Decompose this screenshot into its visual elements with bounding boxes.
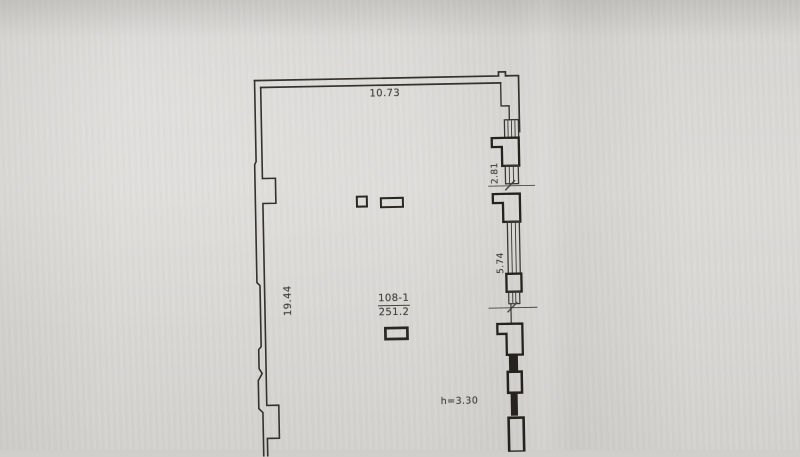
room-number-label: 108-1 xyxy=(378,293,410,307)
dim-label-top-width: 10.73 xyxy=(361,88,409,100)
column-right-3 xyxy=(509,418,525,452)
room-area-label: 251.2 xyxy=(376,307,412,319)
window-band-upper xyxy=(504,120,518,138)
column-rect-top xyxy=(381,198,403,207)
right-wall xyxy=(485,82,540,452)
top-wall xyxy=(254,72,519,137)
ceiling-height-label: h=3.30 xyxy=(441,395,479,407)
column-rect-center xyxy=(385,328,407,339)
left-wall xyxy=(253,80,281,456)
floor-plan: 10.73 19.44 2.81 5.74 108-1 251.2 h=3.30 xyxy=(240,61,547,457)
dim-label-left-height: 19.44 xyxy=(282,285,294,316)
pilaster-right-2 xyxy=(493,194,521,223)
dim-label-right-upper: 2.81 xyxy=(490,162,500,184)
window-band-small xyxy=(509,292,520,304)
column-right-1 xyxy=(506,274,521,292)
window-band-5-74 xyxy=(507,222,520,274)
window-band-2-81 xyxy=(505,166,518,184)
pilaster-right-3 xyxy=(497,324,523,355)
wall-solid-segment-2 xyxy=(511,394,518,416)
wall-solid-segment-1 xyxy=(509,355,518,371)
paper-photo: { "floor_plan": { "dim_top": "10.73", "d… xyxy=(0,0,800,450)
dim-label-right-mid: 5.74 xyxy=(496,252,506,274)
column-square xyxy=(357,197,367,207)
right-corner-step xyxy=(501,83,510,120)
left-wall-pilasters xyxy=(261,87,281,456)
column-right-2 xyxy=(508,372,522,393)
